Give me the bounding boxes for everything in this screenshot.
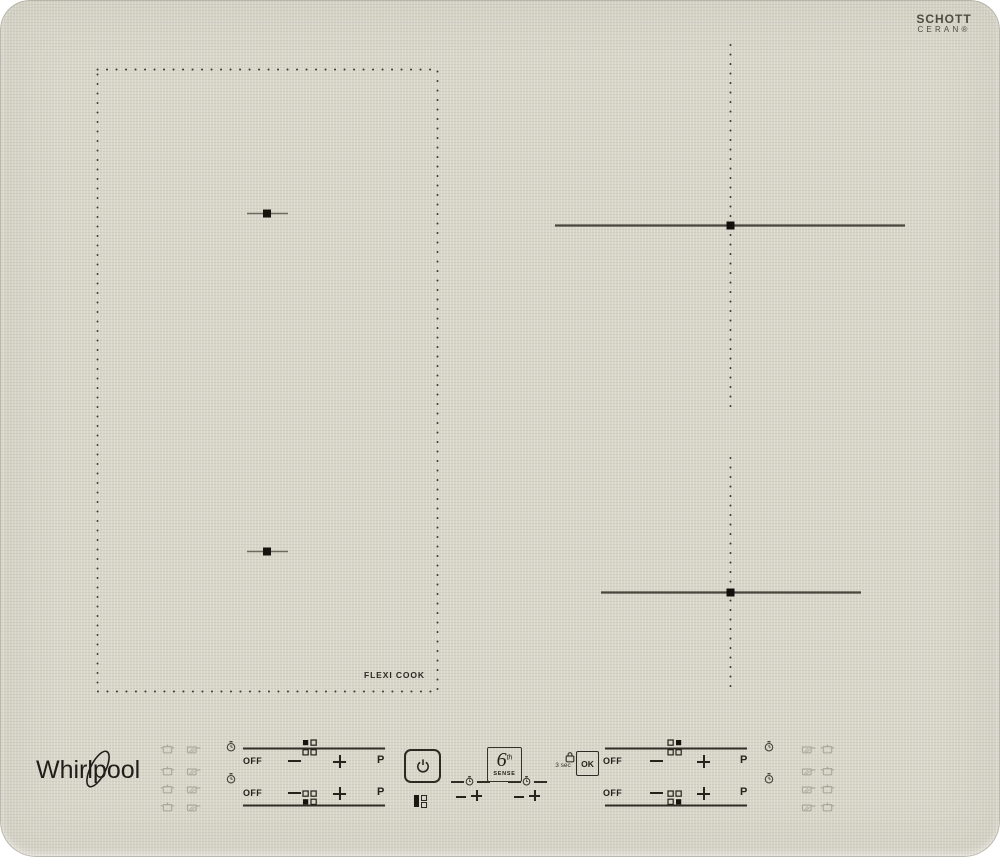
whirlpool-logo: Whirlpool: [36, 750, 146, 792]
zone-select-indicator-bar: [414, 795, 419, 807]
off-button[interactable]: OFF: [243, 788, 262, 798]
boost-button[interactable]: P: [377, 786, 384, 798]
timer-clock-icon: [764, 773, 774, 784]
cookware-pan-icon: [801, 742, 816, 754]
cookware-pan-icon: [801, 782, 816, 794]
minus-button[interactable]: [650, 792, 663, 794]
cookware-pan-icon: [186, 742, 201, 754]
schott-text: SCHOTT: [906, 13, 982, 25]
timer-display-dash: [534, 781, 547, 783]
cookware-pot-icon: [820, 742, 835, 754]
timer-clock-icon: [226, 741, 236, 752]
cookware-pan-icon: [186, 782, 201, 794]
cookware-pot-icon: [160, 800, 175, 812]
timer-plus-button[interactable]: [529, 790, 540, 801]
whirlpool-logo-text: Whirlpool: [36, 756, 140, 784]
timer-minus-button[interactable]: [514, 796, 524, 798]
cookware-pot-icon: [820, 764, 835, 776]
cooktop-glass-surface: [0, 0, 1000, 857]
cookware-pan-icon: [186, 800, 201, 812]
off-button[interactable]: OFF: [603, 788, 622, 798]
plus-button[interactable]: [333, 787, 346, 800]
minus-button[interactable]: [650, 760, 663, 762]
minus-button[interactable]: [288, 760, 301, 762]
off-button[interactable]: OFF: [243, 756, 262, 766]
ceran-text: CERAN®: [906, 25, 982, 35]
timer-clock-icon: [522, 776, 531, 786]
six-sense-word: SENSE: [493, 771, 515, 777]
off-button[interactable]: OFF: [603, 756, 622, 766]
cookware-pot-icon: [160, 782, 175, 794]
flexi-cook-label: FLEXI COOK: [364, 670, 425, 680]
timer-display-dash: [451, 781, 464, 783]
cookware-pan-icon: [186, 764, 201, 776]
timer-minus-button[interactable]: [456, 796, 466, 798]
timer-clock-icon: [465, 776, 474, 786]
power-button[interactable]: [404, 749, 441, 783]
ok-button[interactable]: OK: [576, 751, 599, 776]
timer-clock-icon: [764, 741, 774, 752]
minus-button[interactable]: [288, 792, 301, 794]
power-icon: [415, 758, 431, 774]
timer-clock-icon: [226, 773, 236, 784]
six-sense-digit: 6th: [497, 752, 513, 771]
cookware-pan-icon: [801, 764, 816, 776]
zone-select-indicator-square: [421, 802, 427, 808]
timer-plus-button[interactable]: [471, 790, 482, 801]
product-image: SCHOTT CERAN® FLEXI COOK Whirlpool OFF P…: [0, 0, 1000, 864]
boost-button[interactable]: P: [740, 786, 747, 798]
cookware-pan-icon: [801, 800, 816, 812]
cookware-pot-icon: [160, 764, 175, 776]
plus-button[interactable]: [697, 787, 710, 800]
cookware-pot-icon: [820, 782, 835, 794]
plus-button[interactable]: [333, 755, 346, 768]
six-sense-badge[interactable]: 6th SENSE: [487, 747, 522, 782]
boost-button[interactable]: P: [377, 754, 384, 766]
boost-button[interactable]: P: [740, 754, 747, 766]
lock-hold-hint: 3 sec: [549, 762, 577, 769]
cookware-pot-icon: [820, 800, 835, 812]
plus-button[interactable]: [697, 755, 710, 768]
cookware-pot-icon: [160, 742, 175, 754]
schott-ceran-logo: SCHOTT CERAN®: [906, 13, 982, 35]
zone-select-indicator-square: [421, 795, 427, 801]
